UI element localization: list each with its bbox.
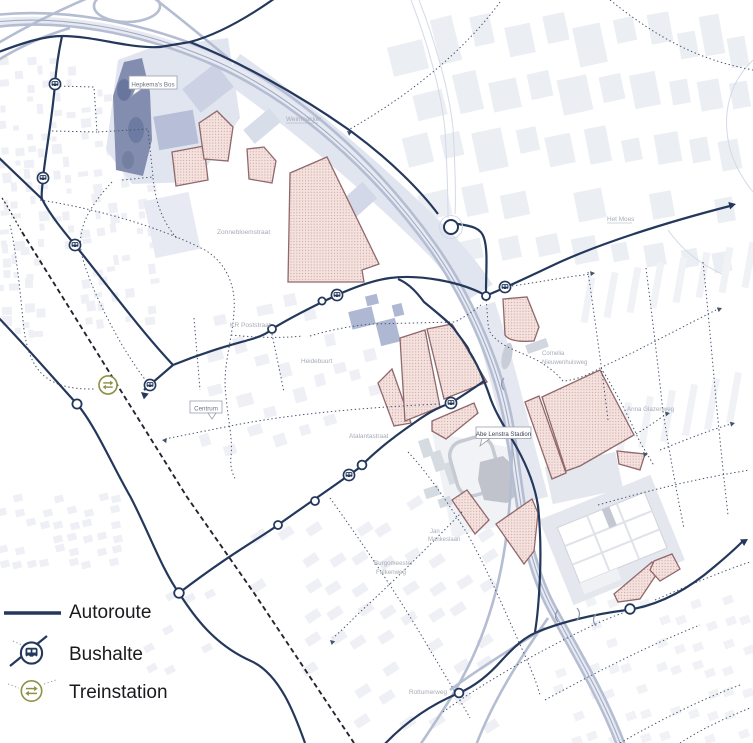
svg-text:Heidebuurt: Heidebuurt	[301, 358, 332, 365]
svg-text:Het Moes: Het Moes	[607, 216, 634, 223]
svg-text:KR Poststraat: KR Poststraat	[230, 322, 271, 329]
svg-text:Nieuwenhuisweg: Nieuwenhuisweg	[542, 360, 587, 366]
svg-text:Zonnebloemstraat: Zonnebloemstraat	[217, 229, 270, 236]
svg-text:Falkenweg: Falkenweg	[376, 569, 406, 576]
svg-text:Weinmakker: Weinmakker	[286, 116, 322, 123]
svg-text:Jan: Jan	[430, 529, 440, 535]
svg-text:Mankeslaan: Mankeslaan	[428, 537, 460, 543]
svg-text:Anna Glazenweg: Anna Glazenweg	[627, 406, 675, 413]
svg-text:Centrum: Centrum	[194, 405, 218, 412]
svg-text:Autoroute: Autoroute	[69, 602, 151, 623]
svg-text:Atalantastraat: Atalantastraat	[349, 433, 389, 440]
svg-text:Burgomeester: Burgomeester	[374, 560, 413, 567]
svg-text:Cornelia: Cornelia	[542, 351, 565, 357]
svg-text:Treinstation: Treinstation	[69, 682, 168, 703]
svg-text:Bushalte: Bushalte	[69, 644, 143, 665]
svg-text:Rottumerweg: Rottumerweg	[409, 689, 447, 696]
svg-text:Hepkema's Bos: Hepkema's Bos	[131, 81, 174, 88]
svg-text:Abe Lenstra Stadion: Abe Lenstra Stadion	[476, 431, 531, 438]
